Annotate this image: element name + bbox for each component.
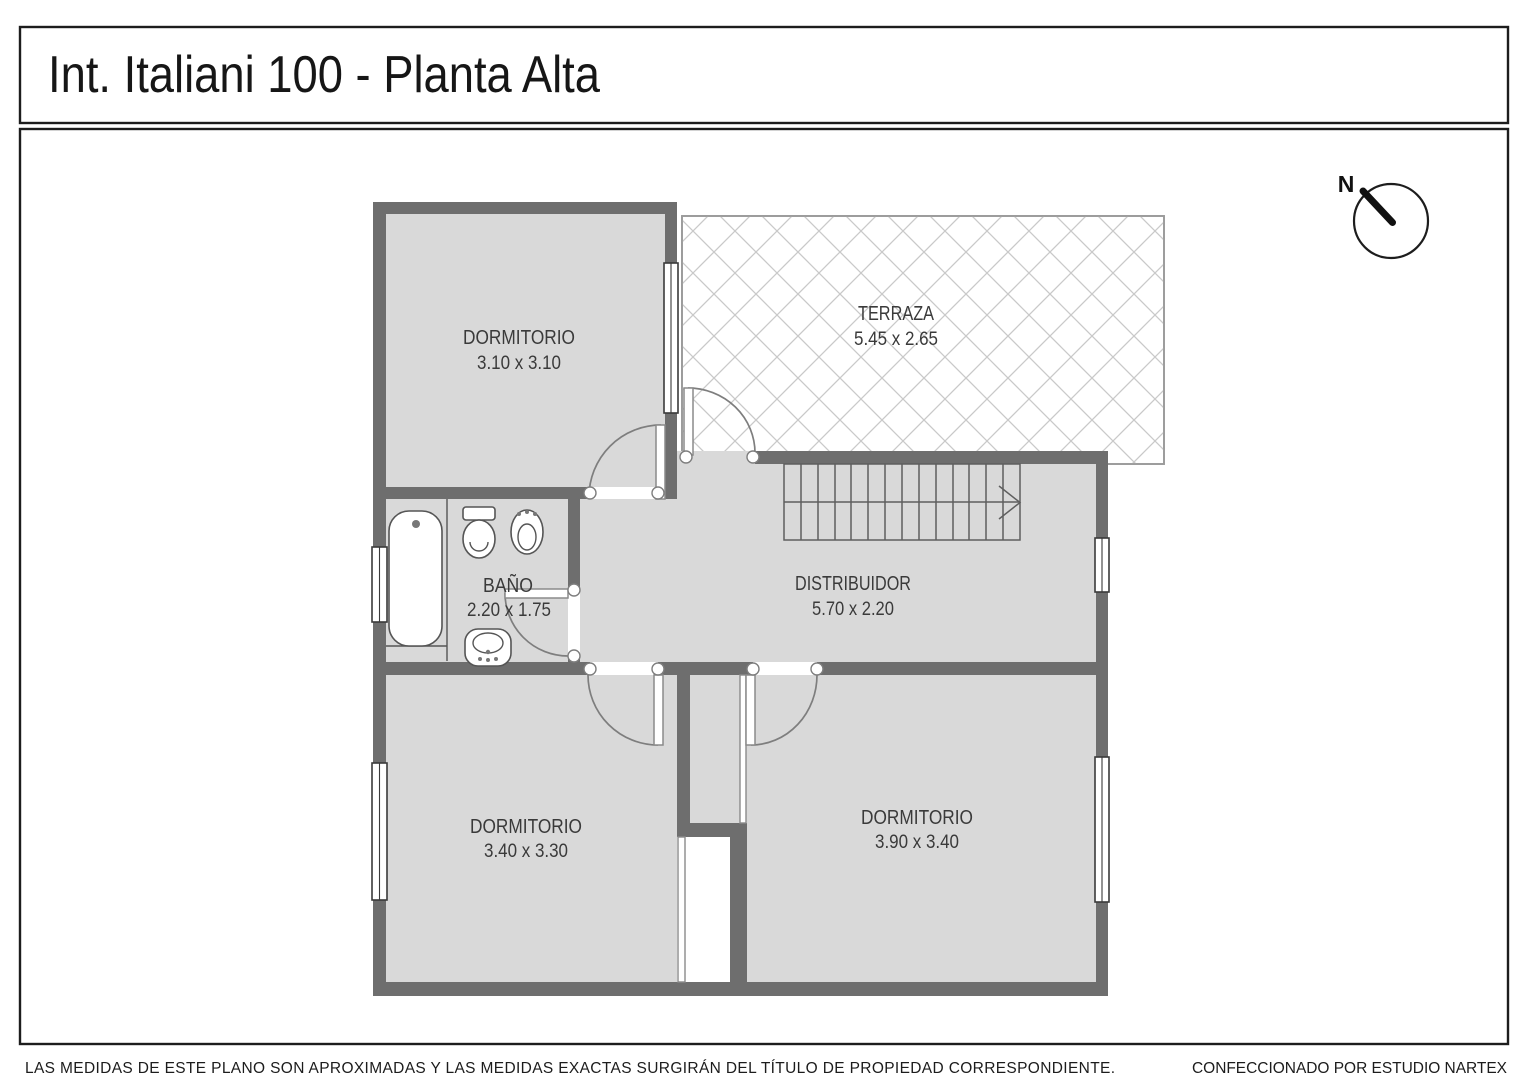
door-leaf-dormitorio2 xyxy=(654,675,663,745)
room-label-dormitorio3-dims: 3.90 x 3.40 xyxy=(875,832,959,853)
room-label-terraza-name: TERRAZA xyxy=(858,303,935,325)
room-label-distribuidor-name: DISTRIBUIDOR xyxy=(795,573,911,595)
bathtub xyxy=(389,511,442,646)
door-leaf-dormitorio3 xyxy=(746,675,755,745)
door-stop-nub xyxy=(747,451,759,463)
sink-dot xyxy=(486,658,490,662)
thin-wall-closet xyxy=(740,675,746,823)
bidet-dot xyxy=(525,510,529,514)
page: Int. Italiani 100 - Planta Alta xyxy=(0,0,1528,1080)
room-label-dormitorio2-dims: 3.40 x 3.30 xyxy=(484,841,568,862)
room-label-dormitorio2-name: DORMITORIO xyxy=(470,816,582,838)
door-stop-nub xyxy=(680,451,692,463)
toilet-tank xyxy=(463,507,495,520)
door-stop-nub xyxy=(652,487,664,499)
compass-north-label: N xyxy=(1338,171,1355,197)
door-stop-nub xyxy=(568,650,580,662)
bidet-dot xyxy=(517,512,521,516)
room-label-banio-dims: 2.20 x 1.75 xyxy=(467,600,551,621)
footer-credit: CONFECCIONADO POR ESTUDIO NARTEX xyxy=(1192,1060,1508,1077)
sink-dot xyxy=(486,650,490,654)
bidet xyxy=(511,510,543,554)
floorplan-svg: Int. Italiani 100 - Planta Alta xyxy=(0,0,1528,1080)
sink-dot xyxy=(494,657,498,661)
room-label-dormitorio1-dims: 3.10 x 3.10 xyxy=(477,353,561,374)
room-label-distribuidor-dims: 5.70 x 2.20 xyxy=(812,599,894,620)
room-label-terraza-dims: 5.45 x 2.65 xyxy=(854,329,938,350)
bathtub-drain xyxy=(412,520,420,528)
page-title: Int. Italiani 100 - Planta Alta xyxy=(48,46,600,104)
door-stop-nub xyxy=(652,663,664,675)
door-stop-nub xyxy=(568,584,580,596)
door-leaf-terraza xyxy=(684,388,693,455)
bidet-dot xyxy=(533,512,537,516)
room-label-banio-name: BAÑO xyxy=(483,573,533,597)
room-label-dormitorio1-name: DORMITORIO xyxy=(463,327,575,349)
thin-wall-duct xyxy=(678,837,685,982)
door-stop-nub xyxy=(584,487,596,499)
compass-icon: N xyxy=(1338,171,1428,258)
room-label-dormitorio3-name: DORMITORIO xyxy=(861,807,973,829)
toilet-bowl xyxy=(463,520,495,558)
door-stop-nub xyxy=(811,663,823,675)
sink-dot xyxy=(478,657,482,661)
footer-disclaimer: LAS MEDIDAS DE ESTE PLANO SON APROXIMADA… xyxy=(25,1060,1115,1077)
door-stop-nub xyxy=(747,663,759,675)
door-stop-nub xyxy=(584,663,596,675)
